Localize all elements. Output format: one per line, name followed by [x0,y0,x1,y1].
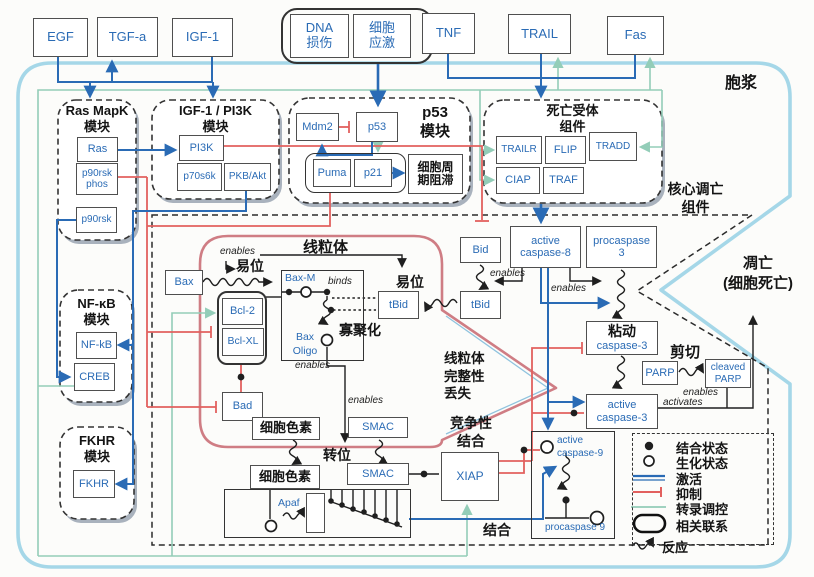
cytochrome-box: 细胞色素 [250,465,320,489]
tnf-box: TNF [422,13,475,54]
dna-damage-box: DNA 损伤 [290,14,349,58]
nfkb-module-title: NF-κB 模块 [62,296,131,329]
competitive-binding-label: 竞争性 结合 [444,414,498,450]
tgfa-box: TGF-a [97,17,158,57]
procaspase3-box: procaspase 3 [586,226,657,268]
p53-module-title: p53 模块 [404,104,466,142]
pkb-akt-box: PKB/Akt [224,163,271,191]
mdm2-box: Mdm2 [296,113,339,141]
binds-annotation: binds [328,276,352,287]
egf-box: EGF [33,18,88,57]
mitochondria-label: 线粒体 [303,238,348,258]
fkhr-module-title: FKHR 模块 [62,433,132,466]
active-caspase8-box: active caspase-8 [510,226,581,268]
igf1-box: IGF-1 [172,18,233,57]
cleavage-label: 剪切 [670,343,700,363]
tbid-inner-box: tBid [378,291,419,319]
caspase3-box: 粘动 caspase-3 [586,321,658,355]
translocation-label: 易位 [236,257,264,275]
legend-association: 相关联系 [676,516,728,535]
p90rsk-box: p90rsk [76,207,117,233]
enables-annotation-3: enables [348,395,383,406]
pi3k-box: PI3K [179,135,224,161]
enables-annotation-5: enables [551,283,586,294]
apoptosis-label: 凋亡 (细胞死亡) [706,254,810,293]
smac-box: SMAC [347,463,409,485]
p90rsk-phos-box: p90rsk phos [76,163,118,195]
mito-integrity-loss-label: 线粒体 完整性 丢失 [444,350,485,403]
tbid-box: tBid [460,291,501,319]
death-receptor-module-title: 死亡受体 组件 [500,103,645,136]
trail-box: TRAIL [508,14,571,54]
trailr-box: TRAILR [496,136,542,164]
creb-box: CREB [74,363,115,391]
nfkb-box: NF-kB [76,332,117,359]
translocation-label-2: 易位 [396,273,424,291]
procaspase9-label: procaspase 9 [539,521,611,534]
puma-box: Puma [313,159,351,187]
enables-annotation-1: enables [220,246,255,257]
fas-box: Fas [607,16,664,55]
p53-box: p53 [356,112,398,142]
cell-stress-box: 细胞 应激 [353,14,411,58]
bax-oligo-label: Bax Oligo [287,331,323,358]
apaf-binding-box [306,493,325,533]
caspase3-en-label: caspase-3 [597,340,648,352]
ciap-box: CIAP [496,167,540,194]
bcl2-box: Bcl-2 [222,298,263,325]
active-caspase9-label: active caspase-9 [557,434,603,460]
legend-reaction: 反应 [662,537,688,556]
translocation-label-3: 转位 [323,446,351,464]
flip-box: FLIP [545,136,586,164]
enables-annotation-2: enables [295,360,330,371]
bax-m-label: Bax-M [285,272,315,286]
bax-box: Bax [165,270,203,295]
caspase3-cn-label: 粘动 [608,324,636,340]
apaf-label: Apaf [278,497,300,511]
xiap-box: XIAP [441,452,499,501]
enables-annotation-4: enables [490,268,525,279]
bid-box: Bid [460,237,501,263]
cytochrome-mito-box: 细胞色素 [252,417,320,440]
p70s6k-box: p70s6k [177,163,222,191]
ras-mapk-module-title: Ras MapK 模块 [58,103,136,136]
fkhr-box: FKHR [73,470,115,498]
active-caspase3-box: active caspase-3 [586,394,658,429]
traf-box: TRAF [543,167,584,194]
parp-box: PARP [642,361,678,385]
cytoplasm-label: 胞浆 [725,74,757,95]
cleaved-parp-box: cleaved PARP [705,359,751,388]
activates-annotation: activates [663,397,702,408]
apoptosis-pathway-diagram: EGF TGF-a IGF-1 DNA 损伤 细胞 应激 TNF TRAIL F… [0,0,814,577]
ras-box: Ras [77,137,118,162]
binding-label: 结合 [483,521,511,539]
smac-mito-box: SMAC [348,417,408,438]
tradd-box: TRADD [589,132,637,161]
p21-box: p21 [354,159,392,187]
cell-cycle-arrest-box: 细胞周 期阻滞 [408,154,463,194]
bclxl-box: Bcl-XL [222,328,264,356]
oligomerization-label: 寡聚化 [339,321,381,339]
pi3k-module-title: IGF-1 / PI3K 模块 [152,103,279,136]
core-components-label: 核心调亡 组件 [648,180,743,216]
